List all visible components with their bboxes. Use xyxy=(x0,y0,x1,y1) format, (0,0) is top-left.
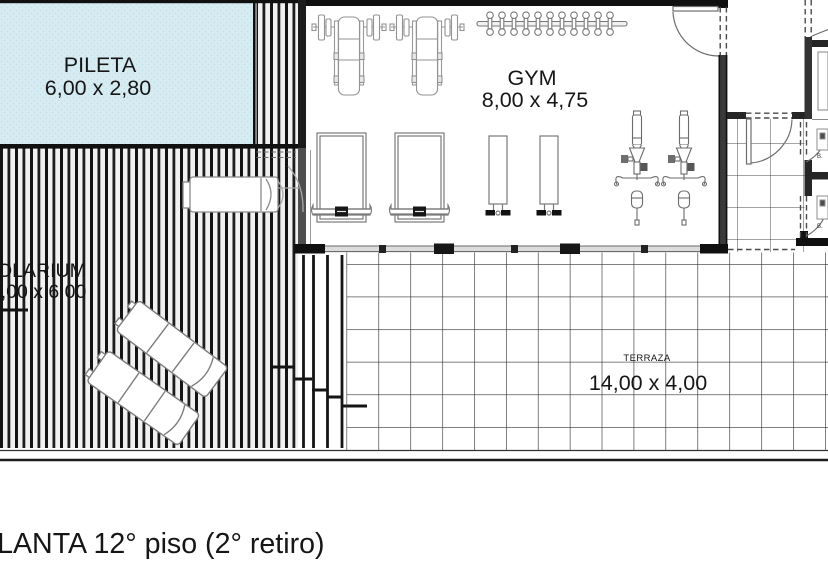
svg-text:6,00 x 2,80: 6,00 x 2,80 xyxy=(45,76,151,100)
svg-text:PILETA: PILETA xyxy=(64,53,137,77)
svg-text:14,00 x 4,00: 14,00 x 4,00 xyxy=(589,371,707,395)
svg-text:B.: B. xyxy=(817,154,823,160)
svg-text:14,00 x 6,00: 14,00 x 6,00 xyxy=(0,281,86,303)
svg-text:GYM: GYM xyxy=(508,66,557,90)
svg-text:B.: B. xyxy=(817,224,823,230)
svg-text:8,00 x 4,75: 8,00 x 4,75 xyxy=(482,88,588,112)
svg-text:TERRAZA: TERRAZA xyxy=(623,353,670,364)
svg-text:SOLARIUM: SOLARIUM xyxy=(0,260,86,282)
svg-text:PLANTA 12° piso (2° retiro): PLANTA 12° piso (2° retiro) xyxy=(0,528,325,560)
